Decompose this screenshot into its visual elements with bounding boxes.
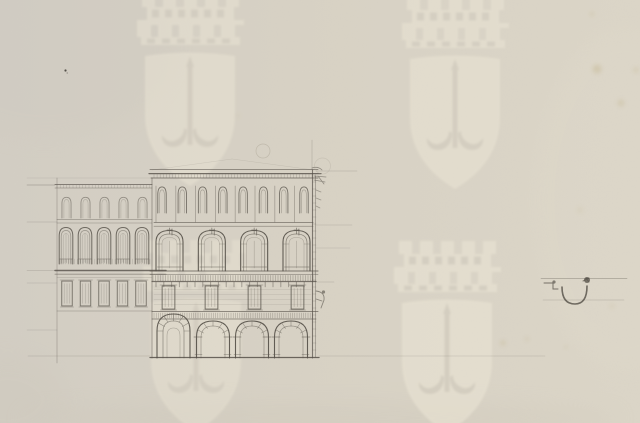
scanned-drawing-page — [0, 0, 640, 423]
scan-canvas — [0, 0, 640, 423]
paper-grain — [0, 0, 640, 423]
